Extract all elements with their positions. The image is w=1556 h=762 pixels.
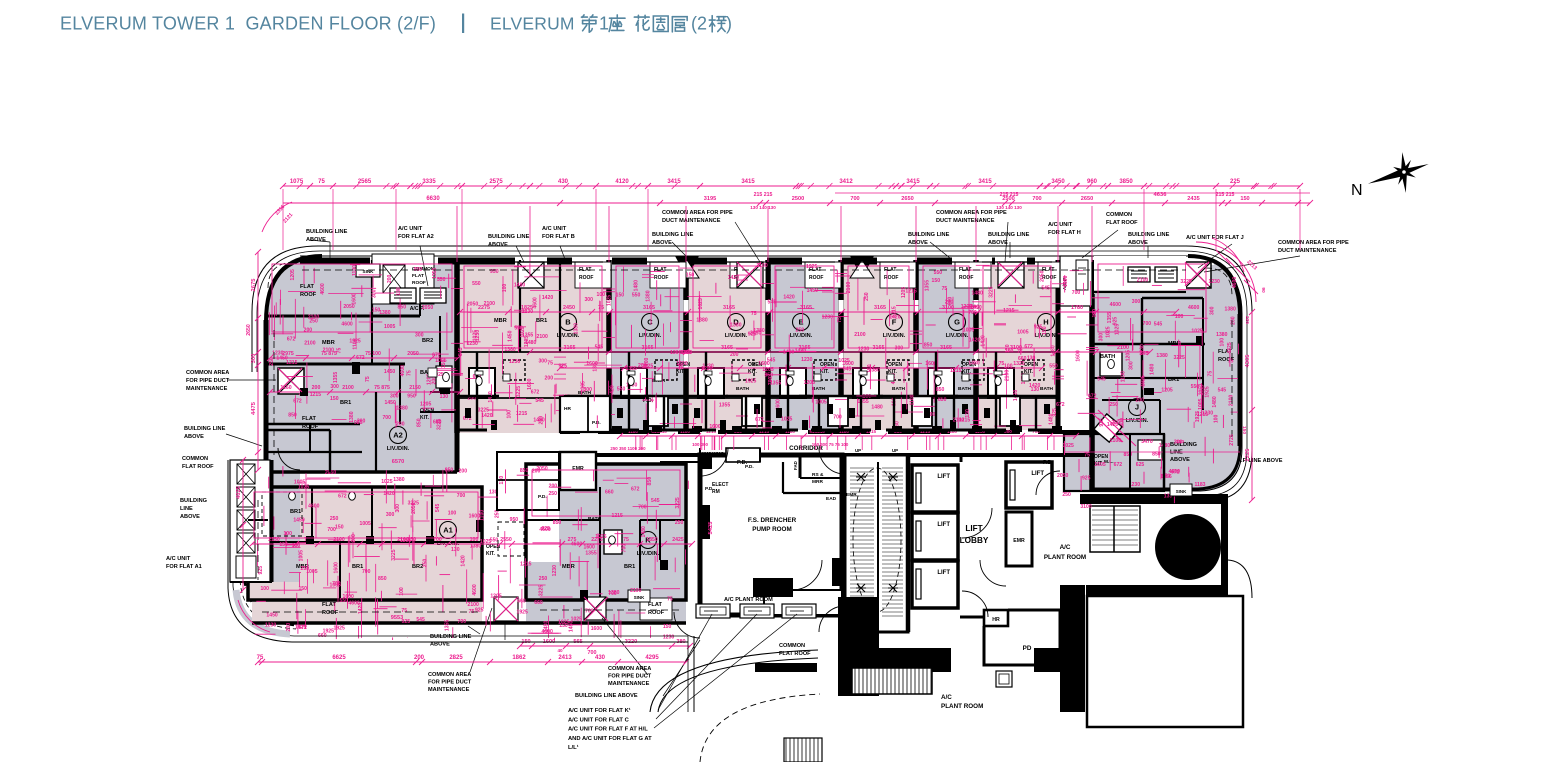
svg-text:1480: 1480 (871, 405, 882, 411)
svg-text:300: 300 (1129, 361, 1135, 370)
svg-text:A/C UNIT FOR FLAT F AT H/L: A/C UNIT FOR FLAT F AT H/L (568, 727, 648, 733)
svg-text:850: 850 (647, 477, 653, 486)
svg-text:225: 225 (1244, 316, 1250, 324)
svg-text:A1: A1 (443, 526, 453, 535)
svg-text:1230: 1230 (475, 330, 481, 341)
svg-text:672: 672 (1056, 402, 1065, 408)
svg-text:672: 672 (1114, 462, 1123, 468)
svg-text:1205: 1205 (420, 402, 431, 408)
svg-text:1420: 1420 (542, 295, 553, 301)
svg-text:2100: 2100 (644, 357, 650, 368)
svg-text:2150: 2150 (409, 385, 421, 391)
svg-text:925: 925 (1082, 476, 1091, 482)
svg-text:1925: 1925 (1195, 411, 1201, 422)
svg-text:1420: 1420 (969, 337, 980, 343)
svg-text:1230: 1230 (1139, 344, 1145, 355)
svg-text:KIT.: KIT. (820, 369, 830, 375)
svg-text:COMMON: COMMON (1106, 212, 1132, 218)
svg-text:130: 130 (1092, 309, 1098, 318)
svg-text:1480: 1480 (972, 291, 983, 297)
svg-text:1380: 1380 (1225, 307, 1236, 313)
svg-text:COMMON AREA FOR PIPE: COMMON AREA FOR PIPE (662, 210, 733, 216)
svg-text:A.F. LINE ABOVE: A.F. LINE ABOVE (1237, 458, 1283, 464)
svg-text:75: 75 (401, 608, 407, 614)
svg-text:2550: 2550 (500, 537, 512, 543)
svg-text:200: 200 (549, 484, 558, 490)
svg-text:2100: 2100 (323, 347, 334, 353)
svg-text:3225: 3225 (478, 408, 489, 414)
svg-text:75: 75 (1084, 452, 1090, 458)
svg-text:DUCT MAINTENANCE: DUCT MAINTENANCE (936, 218, 995, 224)
svg-text:1925: 1925 (517, 609, 528, 615)
svg-text:1380: 1380 (379, 310, 390, 316)
svg-text:C: C (647, 318, 653, 327)
svg-text:4120: 4120 (615, 179, 629, 185)
svg-text:1380: 1380 (730, 323, 741, 329)
svg-text:ROOF: ROOF (412, 280, 426, 286)
svg-text:2650: 2650 (901, 196, 913, 202)
svg-text:LIFT: LIFT (1031, 471, 1044, 477)
svg-text:WMC: WMC (712, 451, 725, 457)
svg-text:FLAT ROOF: FLAT ROOF (779, 651, 811, 657)
svg-text:2650: 2650 (1081, 196, 1093, 202)
svg-text:HR: HR (992, 617, 1000, 623)
svg-text:LIFT: LIFT (937, 570, 950, 576)
svg-text:4600: 4600 (308, 504, 319, 510)
svg-text:BATH: BATH (1040, 386, 1054, 392)
svg-text:925: 925 (258, 566, 264, 575)
svg-text:672: 672 (338, 493, 347, 499)
svg-text:4600: 4600 (320, 283, 326, 294)
svg-text:100: 100 (399, 587, 405, 596)
svg-text:A/C UNIT FOR FLAT J: A/C UNIT FOR FLAT J (1186, 235, 1244, 241)
svg-text:3415: 3415 (741, 179, 755, 185)
svg-text:BUILDING LINE: BUILDING LINE (988, 232, 1030, 238)
svg-text:300: 300 (386, 512, 395, 518)
svg-text:200: 200 (459, 469, 468, 475)
svg-text:EMR: EMR (572, 466, 584, 472)
svg-text:300: 300 (390, 393, 399, 399)
svg-text:700: 700 (1032, 196, 1041, 202)
svg-text:MBR: MBR (562, 564, 575, 570)
svg-text:100: 100 (260, 586, 269, 592)
svg-text:850: 850 (445, 468, 454, 474)
svg-text:2450: 2450 (563, 305, 575, 311)
svg-text:MBR: MBR (494, 318, 507, 324)
svg-text:660: 660 (534, 600, 543, 606)
svg-text:UP: UP (892, 448, 898, 453)
svg-text:2100: 2100 (1229, 395, 1235, 406)
svg-text:MAINTENANCE: MAINTENANCE (186, 386, 228, 392)
svg-text:2575: 2575 (489, 179, 503, 185)
svg-text:150: 150 (330, 396, 339, 402)
svg-text:75: 75 (1017, 349, 1023, 355)
svg-text:130: 130 (440, 394, 449, 400)
svg-text:150: 150 (1042, 326, 1048, 335)
svg-text:75: 75 (999, 361, 1005, 367)
svg-text:672: 672 (1024, 344, 1033, 350)
svg-text:1925: 1925 (745, 378, 756, 384)
svg-text:BATH: BATH (958, 386, 972, 392)
svg-text:925: 925 (1113, 317, 1119, 326)
svg-text:ABOVE: ABOVE (1128, 240, 1148, 246)
svg-text:300: 300 (1132, 299, 1141, 305)
svg-text:100 300 75 75 100: 100 300 75 75 100 (812, 442, 849, 447)
svg-text:1480: 1480 (795, 349, 806, 355)
svg-text:2413: 2413 (558, 655, 572, 661)
svg-text:ABOVE: ABOVE (488, 242, 508, 248)
svg-text:4475: 4475 (251, 401, 257, 415)
svg-text:A/C: A/C (1060, 544, 1071, 551)
svg-text:100: 100 (448, 510, 457, 516)
svg-text:J: J (1135, 403, 1139, 412)
svg-text:LIV./DIN.: LIV./DIN. (790, 333, 813, 339)
svg-text:LIV./DIN.: LIV./DIN. (946, 333, 969, 339)
svg-text:130: 130 (451, 547, 460, 553)
svg-text:1420: 1420 (358, 603, 364, 614)
svg-text:1205: 1205 (1161, 388, 1172, 394)
svg-text:90: 90 (1260, 287, 1266, 293)
svg-text:LIV./DIN.: LIV./DIN. (725, 333, 748, 339)
svg-text:672: 672 (631, 487, 640, 493)
svg-text:2050: 2050 (467, 302, 478, 308)
svg-text:3225: 3225 (539, 585, 545, 596)
svg-text:225: 225 (1230, 179, 1241, 185)
svg-text:3165: 3165 (874, 305, 886, 311)
svg-text:300: 300 (330, 384, 339, 390)
svg-text:3412: 3412 (839, 179, 853, 185)
svg-text:FOR FLAT A1: FOR FLAT A1 (166, 564, 202, 570)
svg-text:COMMON AREA: COMMON AREA (428, 672, 471, 678)
svg-text:250: 250 (423, 559, 429, 568)
svg-text:3225: 3225 (989, 286, 995, 297)
svg-text:1450: 1450 (507, 330, 513, 341)
svg-text:P.D.: P.D. (1043, 460, 1054, 466)
svg-text:1100: 1100 (480, 510, 486, 521)
svg-text:PLANT ROOM: PLANT ROOM (1044, 554, 1086, 561)
svg-text:700: 700 (850, 196, 859, 202)
svg-text:850: 850 (520, 468, 529, 474)
svg-text:1230: 1230 (522, 309, 533, 315)
svg-text:2100: 2100 (304, 340, 315, 346)
svg-text:672: 672 (1171, 470, 1180, 476)
svg-text:COMMON: COMMON (182, 456, 208, 462)
svg-text:BR1: BR1 (624, 564, 635, 570)
svg-text:4600: 4600 (542, 629, 553, 635)
svg-text:700: 700 (1072, 290, 1081, 296)
svg-text:545: 545 (1097, 377, 1106, 383)
svg-text:PLANT ROOM: PLANT ROOM (941, 703, 983, 710)
svg-text:2050: 2050 (411, 502, 417, 513)
svg-text:1380: 1380 (645, 290, 651, 301)
svg-text:OPEN: OPEN (820, 362, 835, 368)
svg-text:FLAT: FLAT (302, 416, 316, 422)
svg-text:LIFT: LIFT (937, 474, 950, 480)
svg-text:2100: 2100 (846, 282, 852, 293)
svg-text:75: 75 (837, 317, 843, 323)
svg-text:545: 545 (416, 617, 425, 623)
svg-text:850: 850 (378, 576, 387, 582)
svg-text:950: 950 (292, 543, 301, 549)
svg-text:700: 700 (327, 527, 336, 533)
svg-text:100: 100 (1220, 338, 1226, 347)
svg-text:925: 925 (1052, 408, 1058, 417)
svg-text:2100: 2100 (630, 588, 641, 594)
svg-text:2100: 2100 (1137, 278, 1148, 284)
svg-text:250: 250 (796, 328, 805, 334)
svg-text:150: 150 (616, 292, 625, 298)
svg-text:1025: 1025 (781, 417, 792, 423)
svg-text:ABOVE: ABOVE (988, 240, 1008, 246)
svg-text:250 350 1100 200: 250 350 1100 200 (610, 446, 646, 451)
svg-text:4600: 4600 (1188, 305, 1199, 311)
svg-text:1230: 1230 (801, 357, 812, 363)
svg-text:3165: 3165 (723, 305, 735, 311)
svg-text:MAINTENANCE: MAINTENANCE (608, 681, 650, 687)
svg-text:2100: 2100 (484, 301, 495, 307)
svg-text:4305: 4305 (1245, 354, 1251, 368)
svg-text:ABOVE: ABOVE (180, 514, 200, 520)
svg-text:5425: 5425 (708, 521, 714, 535)
svg-text:850: 850 (398, 304, 407, 310)
svg-text:4600: 4600 (571, 542, 582, 548)
svg-text:1355: 1355 (719, 403, 730, 409)
svg-text:545: 545 (767, 358, 776, 364)
svg-text:RM: RM (712, 489, 720, 495)
svg-text:300: 300 (584, 297, 593, 303)
svg-text:ROOF: ROOF (654, 275, 668, 281)
svg-text:BUILDING LINE: BUILDING LINE (488, 234, 530, 240)
svg-text:1215: 1215 (905, 289, 916, 295)
svg-text:2121: 2121 (282, 212, 294, 225)
svg-text:EMR: EMR (1013, 538, 1025, 544)
svg-text:300: 300 (395, 504, 401, 513)
svg-text:1230: 1230 (509, 359, 520, 365)
svg-text:150: 150 (298, 586, 307, 592)
svg-text:A/C UNIT: A/C UNIT (166, 556, 191, 562)
svg-text:672: 672 (287, 336, 296, 342)
svg-text:1925: 1925 (334, 626, 345, 632)
svg-text:1450: 1450 (293, 517, 304, 523)
svg-text:2100: 2100 (342, 385, 354, 391)
svg-text:1355: 1355 (445, 620, 451, 631)
svg-text:1600: 1600 (1076, 350, 1082, 361)
svg-text:150: 150 (441, 359, 447, 368)
svg-text:1005: 1005 (581, 381, 587, 392)
svg-text:625: 625 (1136, 462, 1145, 468)
svg-text:FOR PIPE DUCT: FOR PIPE DUCT (186, 378, 230, 384)
svg-text:4600: 4600 (1232, 277, 1238, 288)
svg-text:3165: 3165 (800, 305, 812, 311)
svg-text:130: 130 (593, 363, 599, 372)
svg-text:200: 200 (312, 385, 321, 391)
svg-text:LIFT: LIFT (937, 522, 950, 528)
svg-text:1450: 1450 (266, 613, 277, 619)
svg-text:BR1: BR1 (290, 509, 301, 515)
svg-text:1420: 1420 (783, 295, 794, 301)
svg-text:200: 200 (304, 328, 313, 334)
svg-text:700: 700 (833, 414, 842, 420)
svg-text:545: 545 (1154, 322, 1163, 328)
svg-text:250: 250 (1062, 492, 1071, 498)
svg-text:1025: 1025 (838, 358, 849, 364)
svg-text:250: 250 (539, 576, 548, 582)
svg-text:300: 300 (415, 333, 424, 339)
svg-text:2050: 2050 (1040, 270, 1046, 281)
svg-text:1025: 1025 (381, 479, 392, 485)
svg-text:1355: 1355 (585, 551, 596, 557)
svg-text:SINK: SINK (1176, 489, 1187, 494)
svg-text:FLAT ROOF: FLAT ROOF (1106, 220, 1138, 226)
svg-text:4600: 4600 (472, 584, 478, 595)
svg-text:1025: 1025 (595, 534, 606, 540)
svg-text:MBR: MBR (322, 340, 335, 346)
svg-text:FLAT: FLAT (412, 273, 424, 279)
svg-text:1230: 1230 (822, 315, 833, 321)
svg-text:200: 200 (532, 469, 541, 475)
svg-text:150: 150 (663, 624, 672, 630)
svg-text:75: 75 (751, 311, 757, 317)
svg-text:1005: 1005 (1198, 398, 1204, 409)
svg-text:LIV./DIN.: LIV./DIN. (1126, 418, 1149, 424)
svg-text:550: 550 (934, 270, 943, 276)
svg-text:1205: 1205 (901, 287, 907, 298)
svg-text:430: 430 (595, 655, 606, 661)
svg-text:OPEN: OPEN (1024, 362, 1039, 368)
svg-text:700: 700 (768, 377, 774, 386)
svg-text:75: 75 (257, 655, 264, 661)
svg-text:130: 130 (1005, 344, 1011, 353)
svg-text:FLAT: FLAT (648, 602, 662, 608)
svg-text:3850: 3850 (1119, 179, 1133, 185)
svg-text:100: 100 (1004, 364, 1013, 370)
svg-text:1556: 1556 (1160, 474, 1171, 480)
svg-text:550: 550 (1049, 363, 1058, 369)
svg-text:1205: 1205 (290, 269, 296, 280)
svg-text:1100: 1100 (353, 338, 359, 349)
svg-text:1215: 1215 (892, 306, 898, 317)
svg-text:1780: 1780 (1071, 305, 1083, 311)
svg-text:672: 672 (293, 399, 302, 405)
svg-text:1230: 1230 (1209, 279, 1220, 285)
svg-text:200: 200 (286, 623, 292, 632)
svg-text:150: 150 (1241, 426, 1247, 434)
svg-text:150: 150 (1240, 196, 1249, 202)
svg-text:BATH: BATH (736, 386, 750, 392)
svg-text:A/C PLANT ROOM: A/C PLANT ROOM (724, 597, 773, 603)
svg-text:300: 300 (1099, 333, 1105, 342)
svg-text:BUILDING LINE: BUILDING LINE (306, 229, 348, 235)
svg-text:1380: 1380 (393, 477, 404, 483)
svg-text:ROOF: ROOF (300, 292, 317, 298)
svg-text:ROOF: ROOF (884, 275, 898, 281)
svg-text:75: 75 (365, 376, 371, 382)
svg-text:75: 75 (336, 348, 342, 354)
svg-text:2565: 2565 (358, 179, 372, 185)
svg-text:545: 545 (651, 498, 660, 504)
svg-text:1850: 1850 (646, 537, 658, 543)
svg-text:1230: 1230 (1202, 411, 1213, 417)
svg-text:3415: 3415 (906, 179, 920, 185)
svg-text:ROOF: ROOF (809, 275, 823, 281)
svg-text:3225: 3225 (516, 386, 522, 397)
svg-text:4600: 4600 (533, 297, 539, 308)
svg-text:P.D.: P.D. (737, 460, 748, 466)
svg-text:1215: 1215 (286, 360, 297, 366)
svg-text:75: 75 (1228, 358, 1234, 364)
svg-text:130 140 130: 130 140 130 (996, 205, 1022, 210)
svg-text:N: N (1351, 182, 1363, 199)
svg-text:130: 130 (670, 350, 679, 356)
svg-text:ROOF: ROOF (648, 610, 665, 616)
svg-text:1380: 1380 (573, 323, 579, 334)
svg-text:BATH: BATH (892, 386, 906, 392)
svg-text:75: 75 (407, 370, 413, 376)
svg-text:150: 150 (559, 623, 568, 629)
svg-text:1100: 1100 (352, 265, 358, 276)
svg-text:200: 200 (1231, 316, 1237, 325)
svg-text:ELVERUM TOWER 1 GARDEN FLOOR: ELVERUM TOWER 1 GARDEN FLOOR (2/F) (60, 14, 436, 34)
svg-text:672: 672 (755, 417, 764, 423)
svg-text:2425: 2425 (672, 537, 684, 543)
svg-text:1183: 1183 (1194, 482, 1205, 488)
svg-text:BUILDING LINE ABOVE: BUILDING LINE ABOVE (575, 693, 638, 699)
svg-text:1480: 1480 (514, 283, 525, 289)
svg-text:2100: 2100 (537, 334, 548, 340)
svg-text:2725: 2725 (1229, 434, 1235, 446)
svg-text:UP: UP (855, 448, 861, 453)
svg-text:700: 700 (458, 619, 467, 625)
svg-text:A2: A2 (393, 431, 403, 440)
svg-text:850: 850 (288, 412, 297, 418)
svg-text:1355: 1355 (522, 332, 533, 338)
svg-text:215 215: 215 215 (754, 192, 773, 198)
svg-text:1450: 1450 (384, 369, 395, 375)
svg-text:925: 925 (541, 526, 550, 532)
svg-text:FOR PIPE DUCT: FOR PIPE DUCT (608, 674, 652, 680)
svg-text:200: 200 (387, 274, 393, 283)
svg-text:1205: 1205 (1125, 350, 1131, 361)
svg-text:1480: 1480 (633, 280, 639, 291)
svg-text:300: 300 (1209, 306, 1215, 315)
svg-text:BR2: BR2 (422, 338, 433, 344)
svg-text:550: 550 (514, 326, 523, 332)
svg-text:430: 430 (558, 179, 569, 185)
svg-text:BR1: BR1 (340, 400, 351, 406)
svg-text:545: 545 (435, 503, 441, 512)
svg-text:2050: 2050 (1057, 473, 1068, 479)
svg-text:1230: 1230 (552, 565, 558, 576)
svg-text:1025: 1025 (606, 295, 612, 306)
svg-text:HR: HR (564, 406, 571, 412)
svg-text:BUILDING LINE: BUILDING LINE (652, 232, 694, 238)
svg-text:MRR: MRR (812, 479, 823, 485)
svg-text:672: 672 (356, 355, 365, 361)
svg-text:FLAT: FLAT (322, 602, 336, 608)
svg-text:1925: 1925 (806, 264, 817, 270)
svg-text:F.S. DRENCHER: F.S. DRENCHER (748, 517, 797, 524)
svg-text:DUCT MAINTENANCE: DUCT MAINTENANCE (1278, 248, 1337, 254)
svg-text:200: 200 (945, 300, 954, 306)
svg-text:LINE: LINE (180, 506, 193, 512)
svg-text:A/C UNIT FOR FLAT C: A/C UNIT FOR FLAT C (568, 717, 630, 723)
svg-text:300: 300 (538, 358, 547, 364)
svg-text:2825: 2825 (449, 655, 463, 661)
svg-text:BATH: BATH (812, 386, 826, 392)
svg-text:COMMON AREA FOR PIPE: COMMON AREA FOR PIPE (1278, 240, 1349, 246)
svg-text:1420: 1420 (728, 275, 739, 281)
svg-text:672: 672 (298, 625, 307, 631)
